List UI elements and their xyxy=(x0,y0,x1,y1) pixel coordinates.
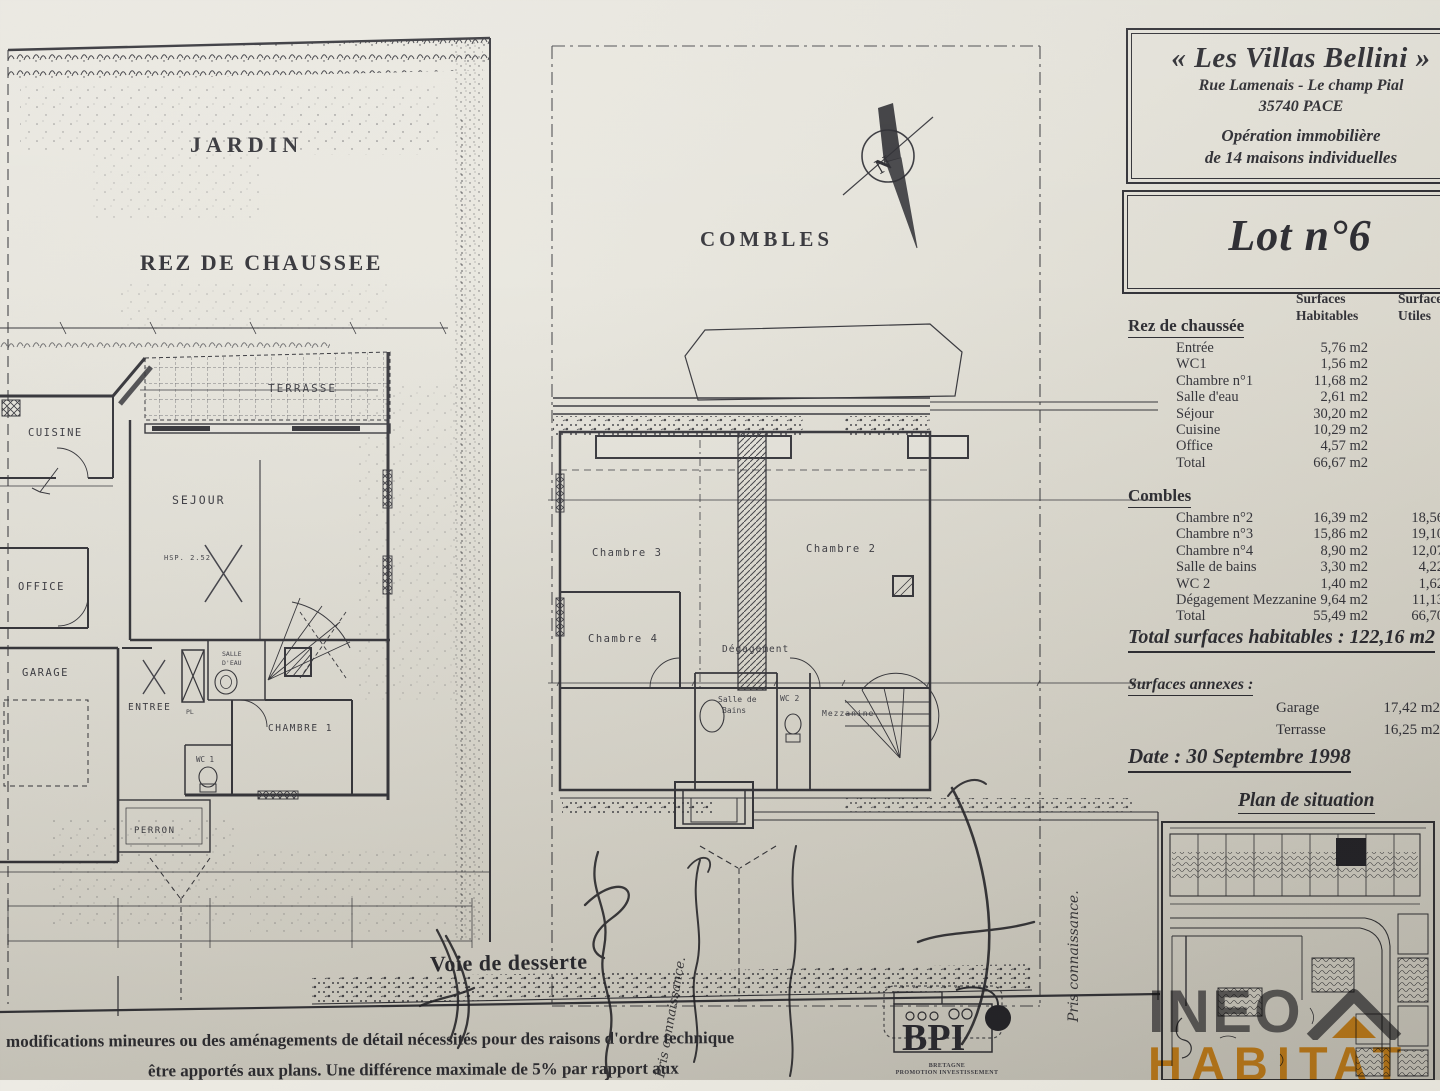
watermark-habitat-text: HABITAT xyxy=(1148,1036,1440,1091)
room-note-hsp: HSP. 2.52 xyxy=(164,554,211,562)
table-row: Cuisine10,29 m2 xyxy=(1128,422,1440,438)
combles-title-label: COMBLES xyxy=(700,227,833,251)
room-label-salle-eau-1: SALLE xyxy=(222,650,242,658)
road-label: Voie de desserte xyxy=(430,949,588,978)
table-row: Salle d'eau2,61 m2 xyxy=(1128,389,1440,405)
project-title-box: « Les Villas Bellini » Rue Lamenais - Le… xyxy=(1126,28,1440,184)
room-label-sdb-1: Salle de xyxy=(718,695,757,704)
project-operation-2: de 14 maisons individuelles xyxy=(1128,147,1440,169)
combles-section-title: Combles xyxy=(1128,486,1191,508)
room-label-cuisine: CUISINE xyxy=(28,427,83,439)
bpi-subtitle-1: BRETAGNE xyxy=(872,1063,1022,1070)
table-row: Séjour30,20 m2 xyxy=(1128,406,1440,422)
table-row: Total66,67 m2 xyxy=(1128,455,1440,471)
room-label-wc2: WC 2 xyxy=(780,694,799,703)
room-label-salle-eau-2: D'EAU xyxy=(222,659,242,667)
handwritten-note-right: Pris connaissance. xyxy=(1066,890,1082,1023)
situation-plan-title: Plan de situation xyxy=(1238,790,1375,814)
table-row: WC 21,40 m21,62 xyxy=(1128,576,1440,592)
watermark-ineo-text: INEO xyxy=(1148,984,1303,1040)
room-label-degagement: Dégagement xyxy=(722,644,789,655)
footer-note-line2: être apportés aux plans. Une différence … xyxy=(148,1059,679,1082)
combles-plot: N COMBLES Chambre 3 Chambre 2 Chambre 4 … xyxy=(548,46,1158,1006)
room-label-entree: ENTREE xyxy=(128,702,171,713)
room-label-terrasse: TERRASSE xyxy=(268,382,337,395)
table-row: Office4,57 m2 xyxy=(1128,438,1440,454)
table-row: Chambre n°48,90 m212,07 xyxy=(1128,543,1440,559)
bpi-name: BPI xyxy=(902,1017,965,1058)
scanned-floor-plan-document: { "panel": { "title": "« Les Villas Bell… xyxy=(0,0,1440,1080)
room-label-office: OFFICE xyxy=(18,581,65,593)
ineo-habitat-watermark: INEO HABITAT xyxy=(1148,982,1440,1091)
closet-label-pl: PL xyxy=(186,708,194,716)
bpi-subtitle-2: PROMOTION INVESTISSEMENT xyxy=(872,1070,1022,1077)
annexe-garage-label: Garage xyxy=(1276,700,1319,717)
room-label-perron: PERRON xyxy=(134,826,176,836)
jardin-label: JARDIN xyxy=(190,132,303,157)
lot-number-box: Lot n°6 xyxy=(1122,190,1440,294)
room-label-garage: GARAGE xyxy=(22,667,69,679)
room-label-sdb-2: Bains xyxy=(722,706,746,715)
highlighted-lot xyxy=(1336,838,1366,866)
bpi-logo-icon: BPI xyxy=(872,972,1032,1058)
rdc-surface-table: Entrée5,76 m2 WC11,56 m2 Chambre n°111,6… xyxy=(1128,340,1440,471)
annexe-terrasse-label: Terrasse xyxy=(1276,722,1326,739)
project-operation-1: Opération immobilière xyxy=(1128,125,1440,147)
house-roof-icon xyxy=(1305,982,1403,1040)
room-label-chambre3: Chambre 3 xyxy=(592,547,662,559)
rdc-section-title: Rez de chaussée xyxy=(1128,316,1244,338)
lot-number: Lot n°6 xyxy=(1124,210,1440,261)
total-habitable-line: Total surfaces habitables : 122,16 m2 xyxy=(1128,626,1435,653)
room-label-wc1: WC 1 xyxy=(196,755,214,764)
project-address-2: 35740 PACE xyxy=(1128,96,1440,117)
project-address-1: Rue Lamenais - Le champ Pial xyxy=(1128,75,1440,96)
room-label-sejour: SEJOUR xyxy=(172,493,226,507)
annexe-garage-value: 17,42 m2 xyxy=(1360,700,1440,717)
date-line: Date : 30 Septembre 1998 xyxy=(1128,744,1351,773)
rdc-plot: JARDIN REZ DE CHAUSSEE TERRASSE CUISINE … xyxy=(0,38,490,1004)
project-title: « Les Villas Bellini » xyxy=(1128,42,1440,75)
annexes-title: Surfaces annexes : xyxy=(1128,676,1253,696)
bpi-logo: BPI BRETAGNE PROMOTION INVESTISSEMENT xyxy=(872,972,1052,1077)
combles-surface-table: Chambre n°216,39 m218,56 Chambre n°315,8… xyxy=(1128,510,1440,625)
room-label-mezzanine: Mezzanine xyxy=(822,709,874,718)
rdc-title-label: REZ DE CHAUSSEE xyxy=(140,250,383,275)
table-row: Chambre n°111,68 m2 xyxy=(1128,373,1440,389)
room-label-chambre1: CHAMBRE 1 xyxy=(268,723,333,734)
table-row: Chambre n°216,39 m218,56 xyxy=(1128,510,1440,526)
column-header-utiles: SurfacesUtiles xyxy=(1398,290,1440,324)
column-header-habitables: SurfacesHabitables xyxy=(1296,290,1358,324)
table-row: WC11,56 m2 xyxy=(1128,356,1440,372)
annexe-terrasse-value: 16,25 m2 xyxy=(1360,722,1440,739)
table-row: Dégagement Mezzanine9,64 m211,13 xyxy=(1128,592,1440,608)
footer-note-line1: modifications mineures ou des aménagemen… xyxy=(6,1028,734,1052)
room-label-chambre2: Chambre 2 xyxy=(806,543,876,555)
table-row: Chambre n°315,86 m219,10 xyxy=(1128,526,1440,542)
table-row: Salle de bains3,30 m24,22 xyxy=(1128,559,1440,575)
table-row: Total55,49 m266,70 xyxy=(1128,608,1440,624)
room-label-chambre4: Chambre 4 xyxy=(588,633,658,645)
table-row: Entrée5,76 m2 xyxy=(1128,340,1440,356)
